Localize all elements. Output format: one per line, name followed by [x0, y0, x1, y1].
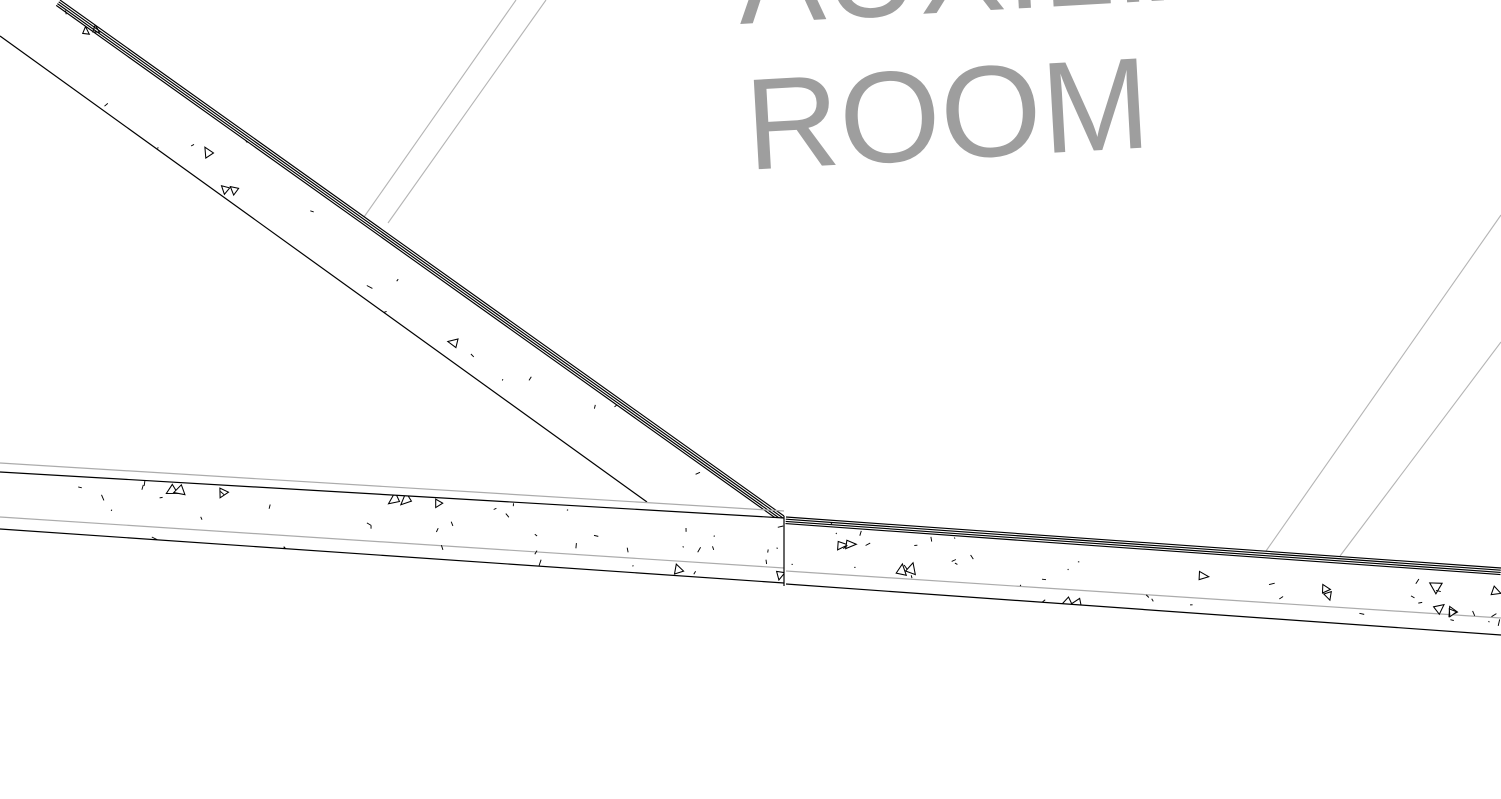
room-label-line2: ROOM [742, 29, 1154, 197]
drawing-viewport: AUXILIARY ROOM [0, 0, 1501, 799]
drawing-canvas[interactable]: AUXILIARY ROOM [0, 0, 1501, 799]
